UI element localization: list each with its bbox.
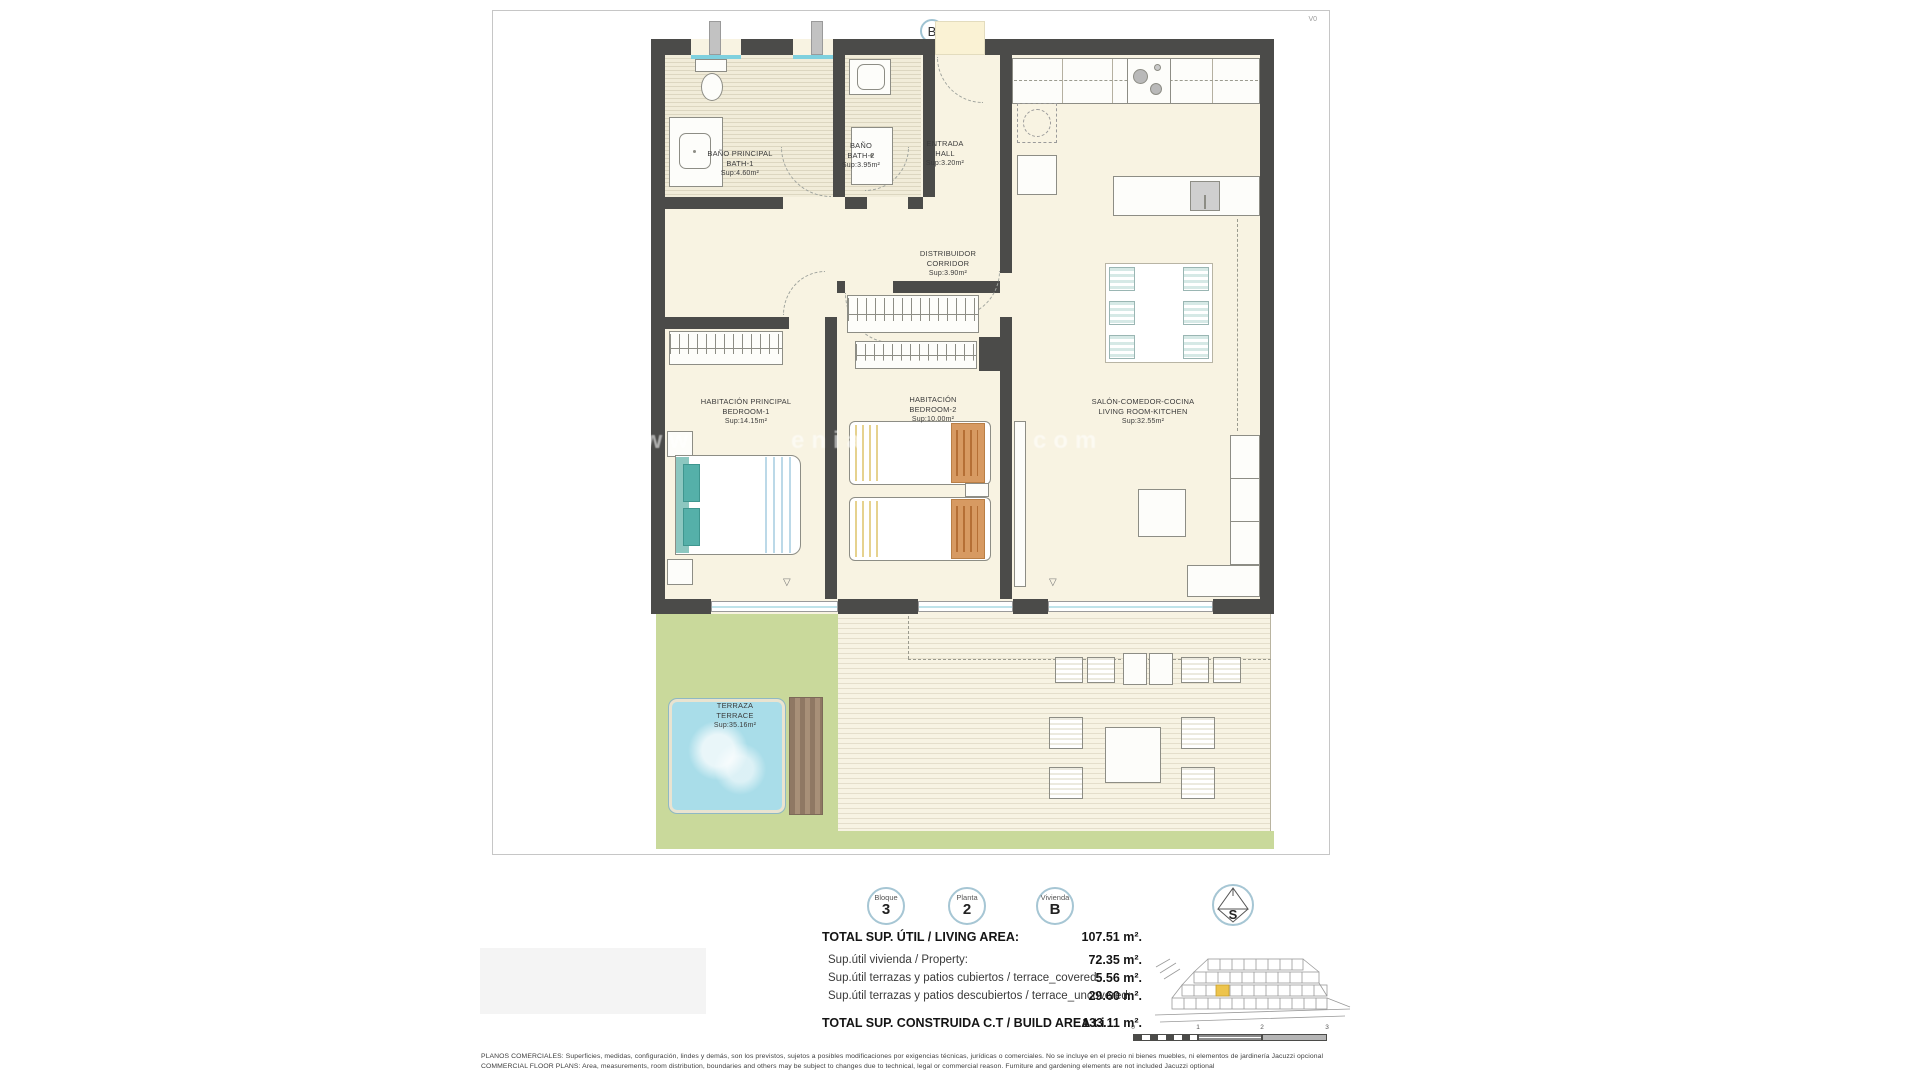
scale-tick: 2: [1260, 1024, 1264, 1031]
badge-value: B: [1038, 902, 1072, 919]
scale-tick: 0: [1131, 1024, 1135, 1031]
wall-segment: [1000, 55, 1012, 197]
room-name-en: LIVING ROOM-KITCHEN: [1092, 407, 1195, 417]
bed-blanket-stripes: [765, 457, 797, 553]
pillow: [683, 464, 700, 502]
toilet-fixture: [695, 59, 727, 72]
wall-segment: [845, 197, 867, 209]
wall-segment: [843, 39, 935, 55]
summary-row-label: TOTAL SUP. ÚTIL / LIVING AREA:: [822, 930, 1019, 944]
blanket-waves: [956, 506, 978, 552]
summary-row-label: Sup.útil vivienda / Property:: [828, 954, 968, 966]
disclaimer-line-1: PLANOS COMERCIALES: Superficies, medidas…: [481, 1052, 1323, 1062]
dining-chair: [1109, 267, 1135, 291]
wall-segment: [833, 39, 845, 197]
wall-segment: [1260, 39, 1274, 614]
dining-chair: [1183, 301, 1209, 325]
burner-icon: [1133, 69, 1148, 84]
appliance-drum-icon: [1023, 109, 1051, 137]
room-name-es: HABITACIÓN: [909, 395, 956, 405]
outdoor-armchair: [1049, 717, 1083, 749]
wall-segment: [1000, 317, 1012, 599]
disclaimer-line-2: COMMERCIAL FLOOR PLANS: Area, measuremen…: [481, 1062, 1214, 1072]
outdoor-chair: [1055, 657, 1083, 683]
badge-value: 3: [869, 902, 903, 919]
room-area: Sup:35.16m²: [714, 721, 756, 730]
outdoor-armchair: [1181, 767, 1215, 799]
appliance-space: [1017, 103, 1057, 143]
room-name-es: TERRAZA: [714, 701, 756, 711]
window-icon: [709, 21, 721, 55]
door-marker-triangle: ▽: [783, 577, 791, 588]
room-area: Sup:3.95m²: [842, 161, 880, 170]
badge-vivienda: Vivienda B: [1036, 887, 1074, 925]
entrance-porch: [935, 21, 985, 55]
outdoor-chair: [1213, 657, 1241, 683]
coffee-table: [1138, 489, 1186, 537]
bed-blanket: [951, 423, 985, 483]
room-name-en: BATH-2: [842, 151, 880, 161]
room-name-es: BAÑO PRINCIPAL: [707, 149, 772, 159]
outdoor-table: [1123, 653, 1147, 685]
summary-row-value: 72.35 m².: [1032, 953, 1142, 967]
wall-segment: [1013, 599, 1048, 614]
plan-sheet: V0 B: [492, 10, 1330, 855]
faint-watermark-block: [480, 948, 706, 1014]
sliding-door: [711, 601, 838, 612]
wall-segment: [838, 599, 918, 614]
wardrobe: [669, 331, 783, 365]
room-name-en: HALL: [926, 149, 964, 159]
badge-value: 2: [950, 902, 984, 919]
outdoor-chair: [1087, 657, 1115, 683]
wall-segment: [665, 317, 789, 329]
watermark-fragment: www: [618, 427, 695, 455]
room-label-living: SALÓN-COMEDOR-COCINA LIVING ROOM-KITCHEN…: [1092, 397, 1195, 427]
version-label: V0: [1308, 16, 1317, 23]
room-label-hall: ENTRADA HALL Sup:3.20m²: [926, 139, 964, 169]
wall-segment: [651, 599, 711, 614]
watermark-fragment: enia: [791, 427, 867, 455]
pool-wood-deck: [789, 697, 823, 815]
door-marker-triangle: ▽: [1049, 577, 1057, 588]
room-name-en: CORRIDOR: [920, 259, 976, 269]
wall-segment: [1213, 599, 1274, 614]
pillow: [683, 508, 700, 546]
badge-planta: Planta 2: [948, 887, 986, 925]
nightstand: [965, 483, 989, 497]
compass-icon: S: [1212, 884, 1254, 926]
badge-bloque: Bloque 3: [867, 887, 905, 925]
room-label-bath2: BAÑO BATH-2 Sup:3.95m²: [842, 141, 880, 171]
room-name-en: BEDROOM-2: [909, 405, 956, 415]
wall-segment: [908, 197, 923, 209]
tv-sideboard: [1014, 421, 1026, 587]
scale-tick: 3: [1325, 1024, 1329, 1031]
dining-chair: [1183, 267, 1209, 291]
overhang-dashed-line: [908, 616, 909, 659]
wall-segment: [741, 39, 793, 55]
lawn-strip: [656, 831, 1274, 849]
room-label-corridor: DISTRIBUIDOR CORRIDOR Sup:3.90m²: [920, 249, 976, 279]
room-area: Sup:4.60m²: [707, 169, 772, 178]
nightstand: [667, 559, 693, 585]
window-icon: [811, 21, 823, 55]
wall-segment: [665, 197, 783, 209]
summary-row-value: 107.51 m².: [1032, 930, 1142, 944]
wall-segment: [825, 317, 837, 599]
building-elevation-sketch: [1150, 945, 1355, 1030]
room-name-es: ENTRADA: [926, 139, 964, 149]
outdoor-table: [1105, 727, 1161, 783]
wall-segment: [979, 337, 1000, 371]
wall-segment: [923, 55, 935, 197]
sofa: [1230, 435, 1260, 565]
room-area: Sup:3.20m²: [926, 159, 964, 168]
blanket-waves: [956, 430, 978, 476]
room-name-en: BEDROOM-1: [701, 407, 791, 417]
wall-segment: [651, 39, 665, 614]
room-area: Sup:3.90m²: [920, 269, 976, 278]
wardrobe: [847, 295, 979, 333]
room-name-es: HABITACIÓN PRINCIPAL: [701, 397, 791, 407]
room-name-en: TERRACE: [714, 711, 756, 721]
room-name-es: SALÓN-COMEDOR-COCINA: [1092, 397, 1195, 407]
room-label-bedroom2: HABITACIÓN BEDROOM-2 Sup:10.00m²: [909, 395, 956, 425]
scale-tick: 1: [1196, 1024, 1200, 1031]
kitchen-island: [1113, 176, 1260, 216]
summary-row-value: 29.60 m².: [1032, 989, 1142, 1003]
dining-chair: [1183, 335, 1209, 359]
sink-basin: [857, 64, 885, 90]
wall-segment: [1000, 197, 1012, 273]
room-name-es: BAÑO: [842, 141, 880, 151]
dining-chair: [1109, 335, 1135, 359]
compass-letter: S: [1214, 907, 1252, 922]
dining-chair: [1109, 301, 1135, 325]
scale-bar-segment: [1198, 1034, 1262, 1041]
room-label-bedroom1: HABITACIÓN PRINCIPAL BEDROOM-1 Sup:14.15…: [701, 397, 791, 427]
bed-stripes: [855, 501, 879, 557]
outdoor-armchair: [1049, 767, 1083, 799]
room-name-en: BATH-1: [707, 159, 772, 169]
room-area: Sup:10.00m²: [909, 415, 956, 424]
burner-icon: [1150, 83, 1162, 95]
scale-bar-segment: [1262, 1034, 1327, 1041]
room-name-es: DISTRIBUIDOR: [920, 249, 976, 259]
faucet-icon: [1204, 195, 1206, 209]
room-label-terrace: TERRAZA TERRACE Sup:35.16m²: [714, 701, 756, 731]
summary-total-value: 133.11 m².: [1032, 1016, 1142, 1030]
page: { "sheet": { "unit_letter": "B", "versio…: [0, 0, 1920, 1080]
wardrobe: [855, 341, 977, 369]
sink-drain: [693, 150, 696, 153]
outdoor-table: [1149, 653, 1173, 685]
room-label-bath1: BAÑO PRINCIPAL BATH-1 Sup:4.60m²: [707, 149, 772, 179]
watermark-fragment: com: [1033, 427, 1103, 455]
burner-icon: [1154, 64, 1161, 71]
room-area: Sup:14.15m²: [701, 417, 791, 426]
toilet-fixture: [701, 73, 723, 101]
outdoor-armchair: [1181, 717, 1215, 749]
sliding-door: [918, 601, 1013, 612]
wall-segment: [837, 281, 845, 293]
room-area: Sup:32.55m²: [1092, 417, 1195, 426]
sofa-chaise: [1187, 565, 1260, 597]
beam-line: [1237, 219, 1238, 431]
outdoor-chair: [1181, 657, 1209, 683]
bed-blanket: [951, 499, 985, 559]
wall-segment: [985, 39, 1274, 55]
sliding-door: [1048, 601, 1213, 612]
scale-bar-segment: [1133, 1034, 1198, 1041]
summary-row-value: 5.56 m².: [1032, 971, 1142, 985]
washer-fixture: [1017, 155, 1057, 195]
